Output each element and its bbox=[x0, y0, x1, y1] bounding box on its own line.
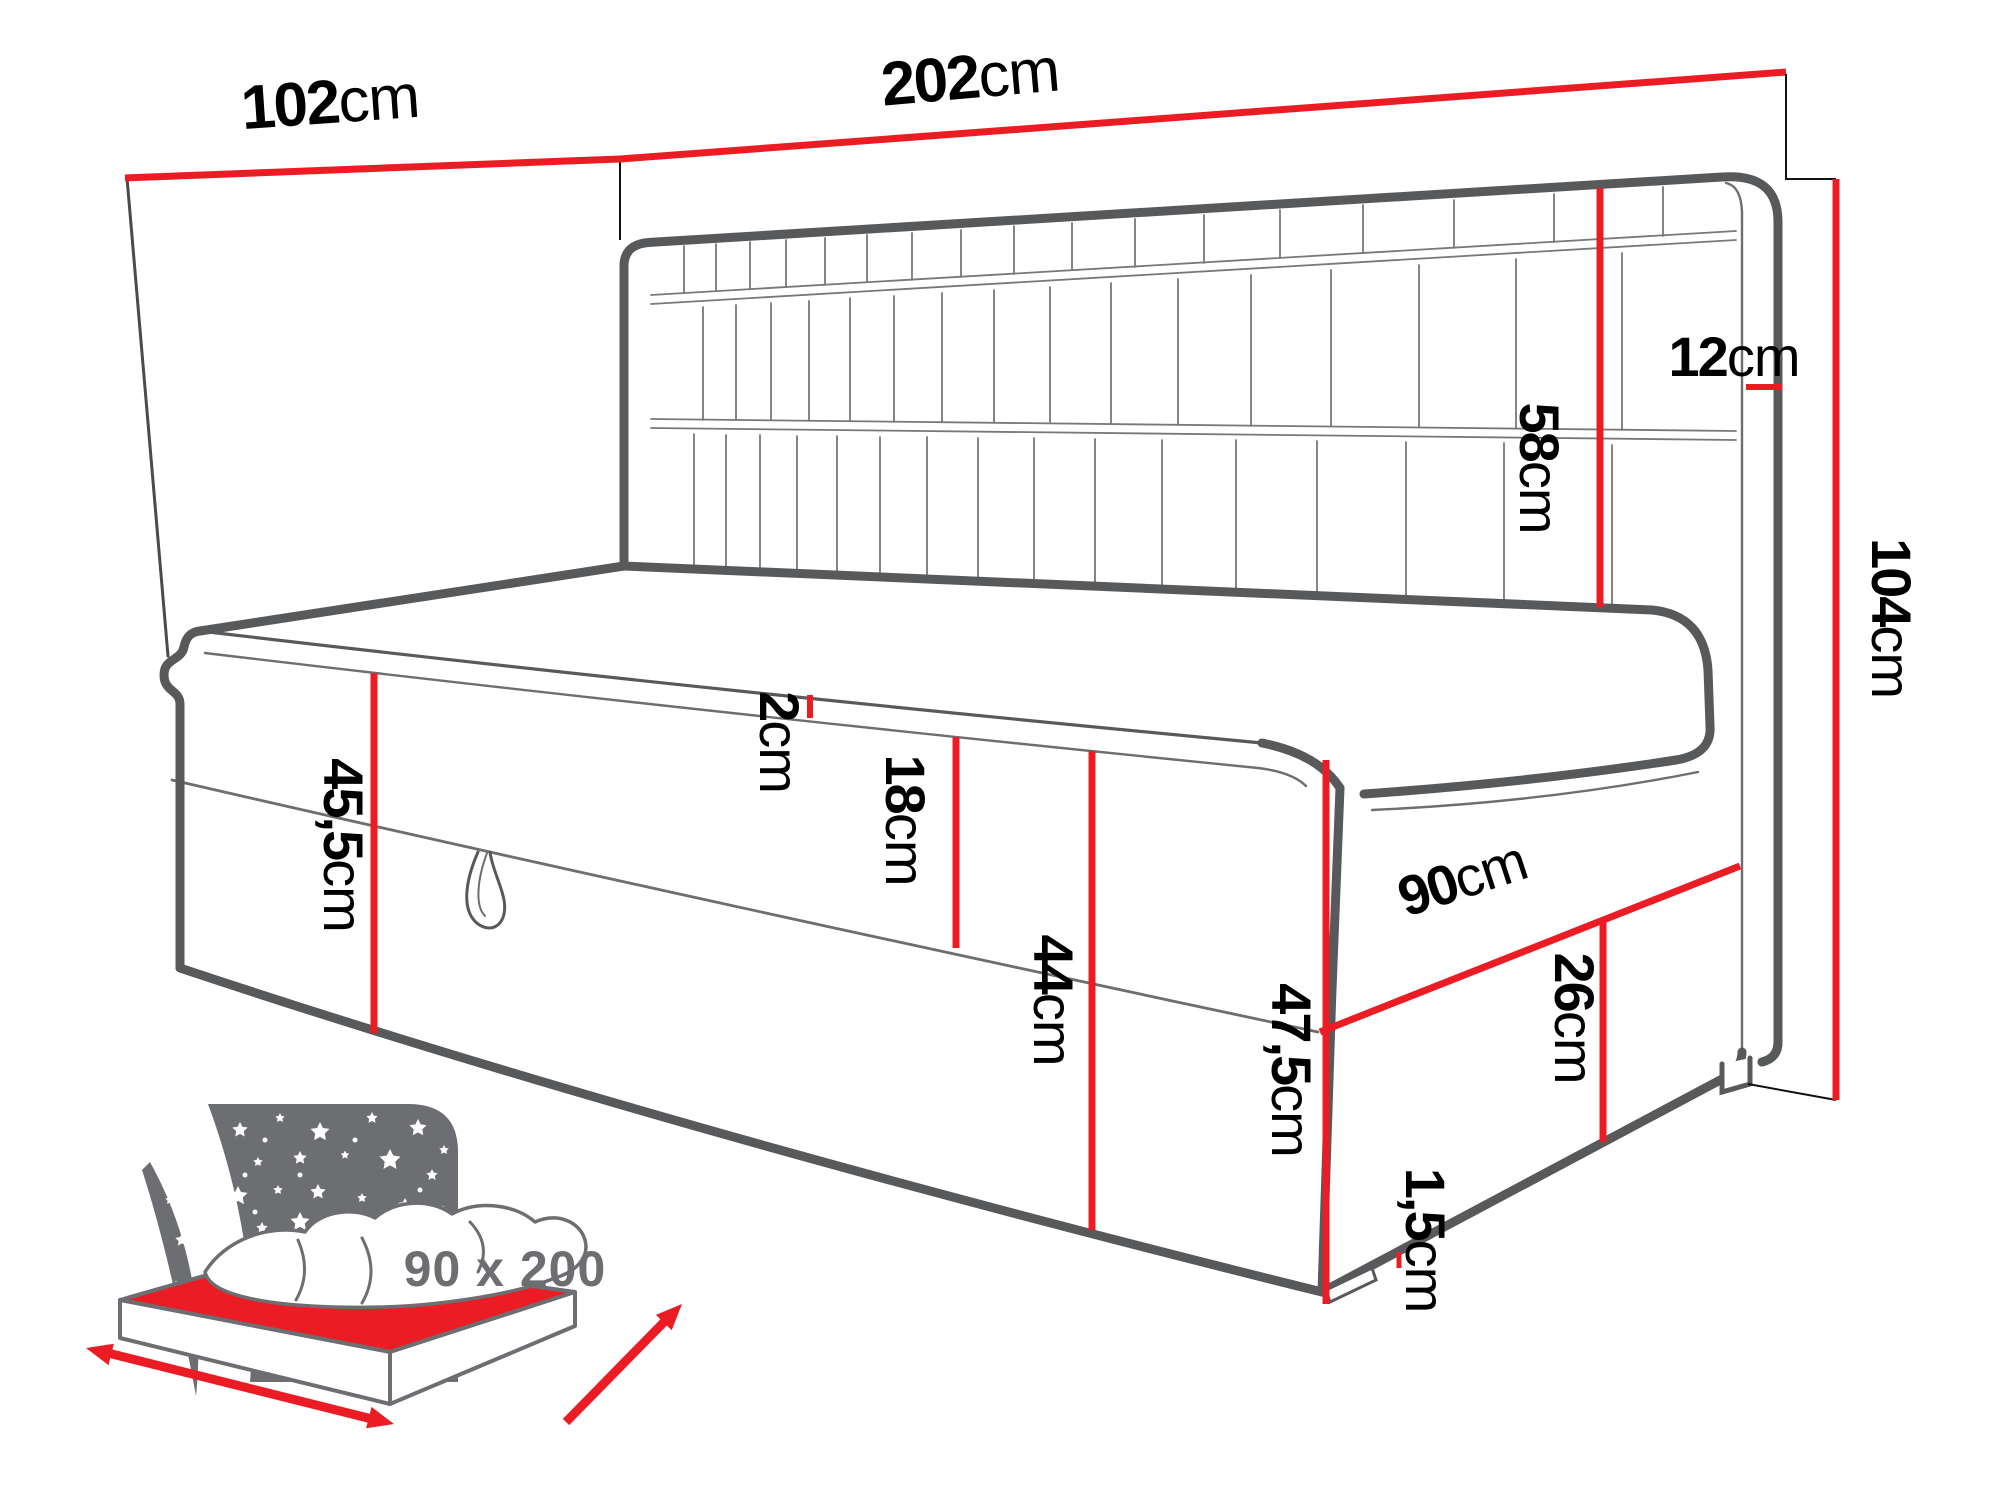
dim-12-label: 12cm bbox=[1669, 325, 1800, 388]
bed-size-icon: 90 x 200 bbox=[86, 1104, 682, 1428]
dim-202-line bbox=[620, 72, 1786, 159]
dim-475-label: 47,5cm bbox=[1261, 983, 1324, 1157]
diagram-canvas: 102cm 202cm 12cm 58cm 104cm 45,5cm 2cm 1… bbox=[0, 0, 2000, 1500]
size-label: 90 x 200 bbox=[404, 1241, 607, 1297]
dim-455-label: 45,5cm bbox=[313, 758, 376, 932]
dim-58-label: 58cm bbox=[1509, 403, 1572, 534]
dim-26-label: 26cm bbox=[1544, 953, 1607, 1084]
bed-dimension-diagram: 102cm 202cm 12cm 58cm 104cm 45,5cm 2cm 1… bbox=[0, 0, 2000, 1500]
dim-102-label: 102cm bbox=[239, 61, 421, 142]
dim-2-label: 2cm bbox=[749, 691, 812, 793]
dim-ref-drop-right bbox=[1786, 74, 1836, 179]
floor-line bbox=[1748, 1084, 1836, 1100]
dim-202-label: 202cm bbox=[878, 35, 1061, 119]
dim-102-line bbox=[125, 159, 620, 178]
dim-18-label: 18cm bbox=[875, 755, 938, 886]
dim-44-label: 44cm bbox=[1023, 935, 1086, 1066]
dim-15-label: 1,5cm bbox=[1395, 1168, 1458, 1313]
dim-104-label: 104cm bbox=[1861, 538, 1924, 698]
icon-length-arrow bbox=[566, 1304, 682, 1422]
